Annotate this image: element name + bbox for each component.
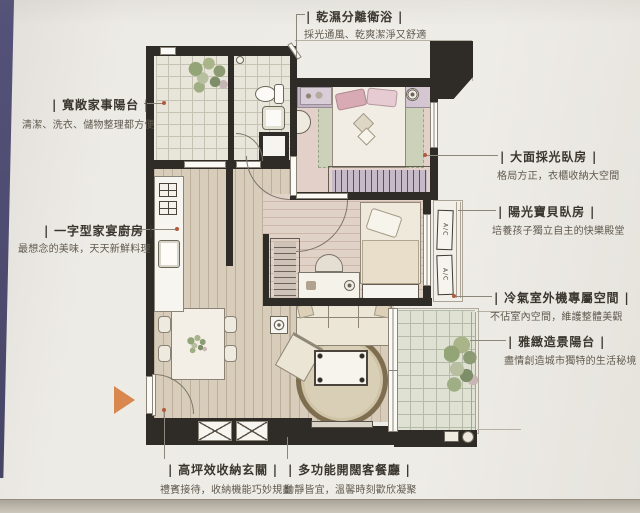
- ac-unit-label: A/C: [441, 223, 448, 237]
- stove-burner: [159, 201, 177, 215]
- leader-line: [164, 412, 165, 459]
- callout-living-dining-subtitle: 動靜皆宜，溫馨時刻歡欣凝聚: [284, 481, 417, 496]
- dining-chair: [158, 345, 171, 362]
- stove-burner: [159, 183, 177, 197]
- dining-chair: [224, 345, 237, 362]
- leader-dot: [423, 153, 427, 157]
- pillow: [366, 87, 398, 107]
- wall-kids-right-b: [423, 286, 431, 306]
- callout-bathroom-title: | 乾濕分離衛浴 |: [306, 8, 403, 25]
- leader-line: [426, 155, 498, 156]
- bathroom-sink: [262, 106, 285, 130]
- callout-master-bedroom-title: | 大面採光臥房 |: [500, 148, 597, 165]
- wall-kids-left: [263, 234, 269, 306]
- wall-kids-bottom: [263, 298, 432, 306]
- service-balcony-plants: [186, 56, 230, 94]
- callout-ac-space-subtitle: 不佔室內空間，維護整體美觀: [490, 308, 623, 323]
- callout-ac-space-title: | 冷氣室外機專屬空間 |: [494, 289, 630, 306]
- callout-kitchen-title: | 一字型家宴廚房 |: [44, 222, 154, 239]
- ac-unit-label: A/C: [441, 268, 448, 282]
- dining-chair: [158, 316, 171, 333]
- kitchen-sink: [158, 240, 180, 268]
- ac-outdoor-unit: A/C: [436, 255, 453, 296]
- dining-chair: [224, 316, 237, 333]
- scenic-balcony-plants: [444, 332, 478, 396]
- desk-decor: [306, 281, 316, 290]
- toilet-tank: [274, 84, 284, 104]
- callout-scenic-balcony-title: | 雅緻造景陽台 |: [508, 333, 605, 350]
- desk-lamp: [344, 280, 355, 291]
- callout-foyer-subtitle: 禮賓接待，收納機能巧妙規劃: [160, 481, 293, 496]
- service-balcony-door: [184, 161, 226, 168]
- balcony-side-table: [444, 431, 459, 442]
- callout-bathroom-subtitle: 採光通風、乾爽潔淨又舒適: [304, 26, 426, 41]
- photo-edge-strip: [0, 0, 14, 478]
- toilet: [255, 86, 276, 102]
- coffee-table: [314, 350, 368, 386]
- callout-master-bedroom-subtitle: 格局方正，衣櫃收納大空間: [497, 167, 619, 182]
- callout-kids-bedroom-title: | 陽光寶貝臥房 |: [498, 203, 595, 220]
- shoe-cabinet: [236, 421, 268, 441]
- balcony-stool: [462, 431, 474, 443]
- leader-dot: [452, 294, 456, 298]
- nightstand-decor: [300, 87, 332, 105]
- entry-door-leaf: [152, 374, 156, 416]
- balcony-sliding-door: [388, 308, 398, 432]
- wall-master-right-a: [430, 78, 438, 102]
- leader-line: [458, 210, 496, 211]
- table-edge-strip: [0, 499, 640, 513]
- master-door-gap: [290, 156, 297, 196]
- leader-line: [287, 437, 288, 459]
- wall-kids-right-a: [423, 200, 431, 214]
- entry-arrow: [114, 386, 135, 414]
- leader-line: [455, 296, 492, 297]
- wall-hall: [226, 162, 233, 266]
- leader-line: [296, 14, 305, 15]
- table-centerpiece: [186, 334, 208, 354]
- wall-bottom-right: [312, 426, 394, 445]
- wall-master-top: [297, 78, 431, 87]
- master-window: [430, 102, 438, 148]
- callout-foyer-title: | 高坪效收納玄關 |: [168, 461, 278, 478]
- service-balcony-window: [160, 47, 176, 55]
- kids-blanket: [362, 240, 419, 284]
- leader-line: [470, 340, 506, 341]
- leader-dot: [162, 101, 166, 105]
- wall-balcony-bath-divider: [228, 54, 234, 164]
- kids-door-gap: [296, 193, 348, 199]
- shower-head-icon: [236, 56, 244, 64]
- leader-dot: [162, 408, 166, 412]
- callout-service-balcony-title: | 寬敞家事陽台 |: [52, 96, 149, 113]
- nightstand-lamp: [406, 88, 419, 101]
- shoe-cabinet: [198, 421, 232, 441]
- construction-line: [477, 429, 521, 430]
- side-table-lamp: [270, 316, 288, 334]
- leader-dot: [175, 227, 179, 231]
- callout-kitchen-subtitle: 最想念的美味，天天新鮮料理: [18, 240, 151, 255]
- callout-service-balcony-subtitle: 清潔、洗衣、儲物整理都方便: [22, 116, 155, 131]
- ac-platform-rail: [456, 202, 461, 298]
- ac-outdoor-unit: A/C: [436, 210, 453, 251]
- kids-window: [423, 214, 431, 286]
- callout-scenic-balcony-subtitle: 盡情創造城市獨特的生活秘境: [504, 352, 637, 367]
- leader-line: [296, 14, 297, 58]
- callout-living-dining-title: | 多功能開闊客餐廳 |: [288, 461, 411, 478]
- callout-kids-bedroom-subtitle: 培養孩子獨立自主的快樂殿堂: [492, 222, 625, 237]
- brochure-photo: A/C A/C | 乾濕分離衛浴 | 採光通: [0, 0, 640, 513]
- tv-console: [311, 421, 373, 428]
